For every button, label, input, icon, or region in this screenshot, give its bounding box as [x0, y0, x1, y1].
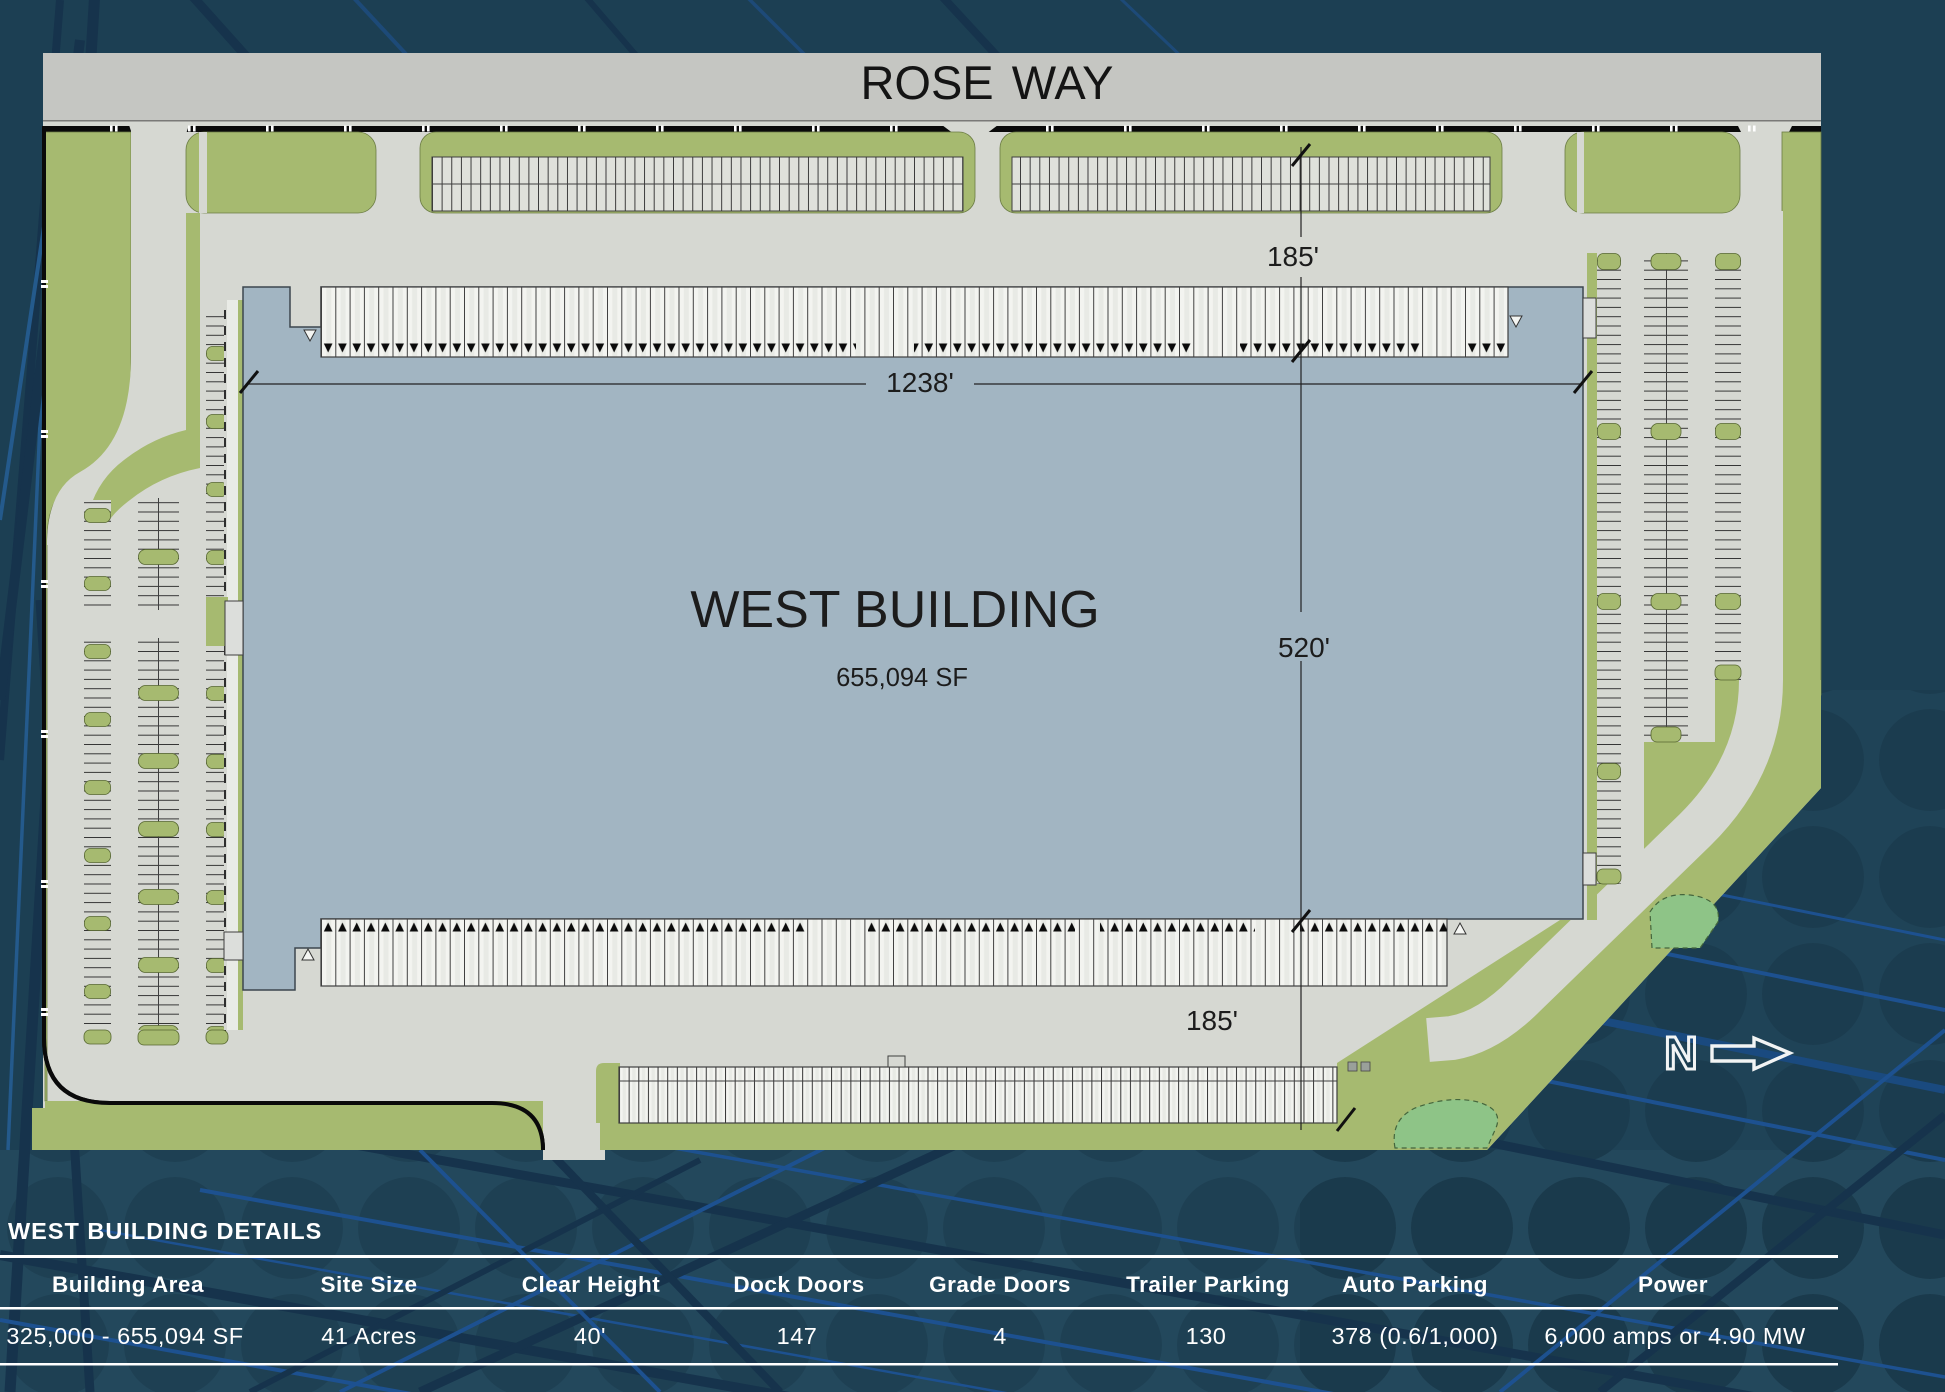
svg-text:Grade Doors: Grade Doors [929, 1272, 1071, 1297]
svg-text:41 Acres: 41 Acres [321, 1323, 416, 1349]
svg-text:Auto Parking: Auto Parking [1342, 1272, 1488, 1297]
svg-text:WEST BUILDING: WEST BUILDING [690, 581, 1099, 639]
svg-text:Building Area: Building Area [52, 1272, 204, 1297]
svg-text:Dock Doors: Dock Doors [733, 1272, 864, 1297]
svg-text:40': 40' [574, 1323, 606, 1349]
svg-text:Clear Height: Clear Height [522, 1272, 661, 1297]
svg-text:ROSE WAY: ROSE WAY [860, 56, 1113, 109]
svg-text:185': 185' [1186, 1005, 1238, 1036]
svg-text:Trailer Parking: Trailer Parking [1126, 1272, 1290, 1297]
svg-text:655,094 SF: 655,094 SF [836, 664, 968, 692]
svg-text:Power: Power [1638, 1272, 1708, 1297]
svg-text:Site Size: Site Size [320, 1272, 417, 1297]
svg-text:1238': 1238' [886, 367, 954, 398]
svg-text:N: N [1664, 1027, 1697, 1079]
svg-text:185': 185' [1267, 241, 1319, 272]
svg-text:4: 4 [993, 1323, 1007, 1349]
svg-text:520': 520' [1278, 632, 1330, 663]
svg-text:WEST BUILDING DETAILS: WEST BUILDING DETAILS [8, 1218, 322, 1244]
svg-text:378 (0.6/1,000): 378 (0.6/1,000) [1332, 1323, 1499, 1349]
svg-text:130: 130 [1186, 1323, 1227, 1349]
svg-text:147: 147 [777, 1323, 818, 1349]
svg-text:6,000 amps or 4.90 MW: 6,000 amps or 4.90 MW [1544, 1323, 1806, 1349]
svg-text:325,000 - 655,094 SF: 325,000 - 655,094 SF [6, 1323, 243, 1349]
